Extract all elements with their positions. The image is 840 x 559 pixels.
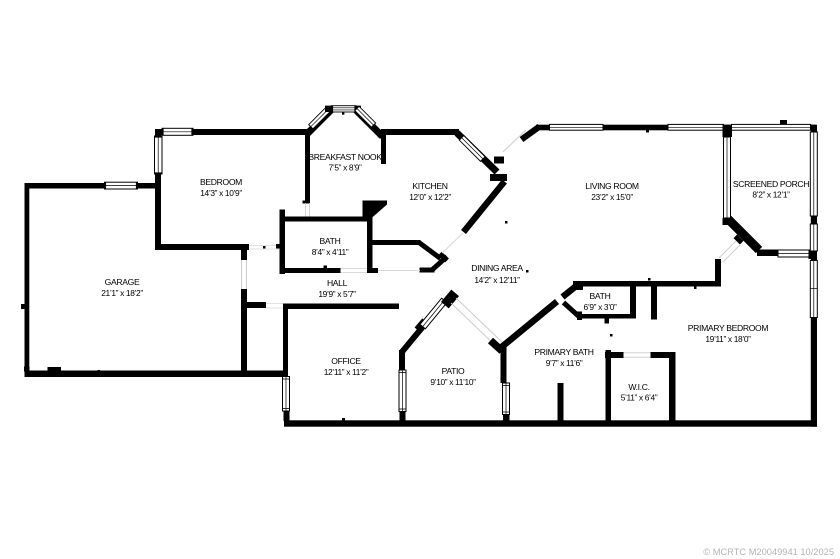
svg-text:21’1” x 18’2”: 21’1” x 18’2” xyxy=(101,288,143,298)
svg-text:14’2” x 12’11”: 14’2” x 12’11” xyxy=(474,275,520,285)
svg-text:BREAKFAST NOOK: BREAKFAST NOOK xyxy=(308,152,382,162)
svg-text:6’9” x 3’0”: 6’9” x 3’0” xyxy=(584,302,617,312)
svg-text:BATH: BATH xyxy=(320,236,341,246)
svg-text:PRIMARY BATH: PRIMARY BATH xyxy=(534,347,593,357)
svg-text:PRIMARY BEDROOM: PRIMARY BEDROOM xyxy=(688,323,769,333)
svg-text:PATIO: PATIO xyxy=(442,366,465,376)
svg-text:19’11” x 18’0”: 19’11” x 18’0” xyxy=(705,334,751,344)
svg-text:© MCRTC M20049941 10/2025: © MCRTC M20049941 10/2025 xyxy=(703,547,834,557)
svg-text:9’7” x 11’6”: 9’7” x 11’6” xyxy=(546,358,583,368)
svg-text:19’9” x 5’7”: 19’9” x 5’7” xyxy=(318,289,356,299)
svg-text:23’2” x 15’0”: 23’2” x 15’0” xyxy=(591,192,633,202)
svg-text:8’4” x 4’11”: 8’4” x 4’11” xyxy=(312,247,349,257)
svg-text:DINING AREA: DINING AREA xyxy=(471,263,523,273)
svg-text:9’10” x 11’10”: 9’10” x 11’10” xyxy=(430,377,476,387)
svg-text:BEDROOM: BEDROOM xyxy=(200,177,242,187)
svg-text:GARAGE: GARAGE xyxy=(105,277,140,287)
svg-text:HALL: HALL xyxy=(327,278,348,288)
svg-text:7’5” x 8’9”: 7’5” x 8’9” xyxy=(329,163,362,173)
svg-text:KITCHEN: KITCHEN xyxy=(412,181,447,191)
svg-text:12’0” x 12’2”: 12’0” x 12’2” xyxy=(409,192,451,202)
svg-text:5’11” x 6’4”: 5’11” x 6’4” xyxy=(621,393,658,403)
svg-text:LIVING ROOM: LIVING ROOM xyxy=(585,181,639,191)
svg-text:BATH: BATH xyxy=(590,291,611,301)
svg-text:SCREENED PORCH: SCREENED PORCH xyxy=(733,179,809,189)
svg-text:OFFICE: OFFICE xyxy=(331,356,361,366)
svg-text:8’2” x 12’1”: 8’2” x 12’1” xyxy=(752,190,790,200)
svg-text:14’3” x 10’9”: 14’3” x 10’9” xyxy=(200,188,242,198)
svg-text:12’11” x 11’2”: 12’11” x 11’2” xyxy=(324,367,369,377)
svg-text:W.I.C.: W.I.C. xyxy=(628,382,649,392)
